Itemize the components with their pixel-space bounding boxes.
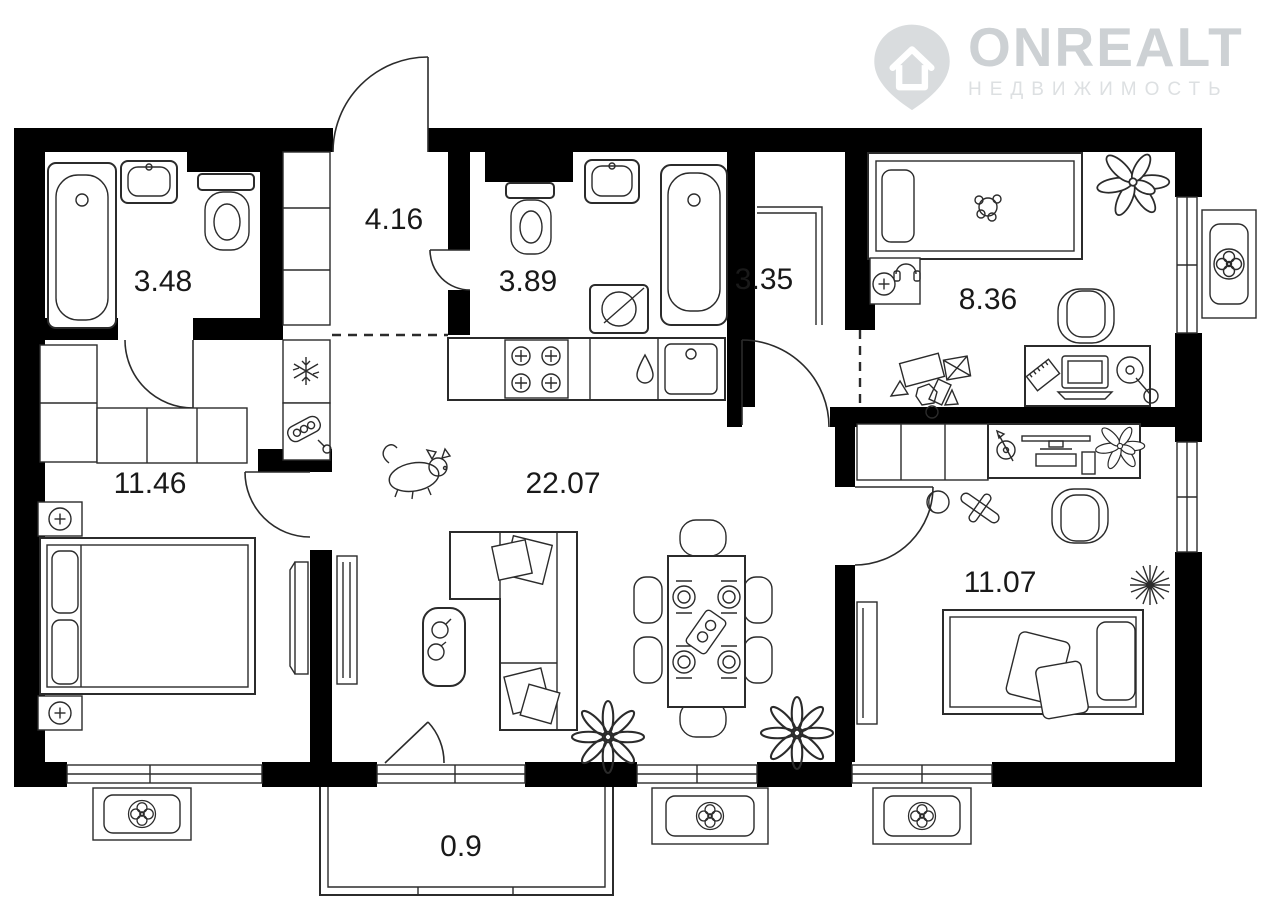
ac-unit-living	[652, 788, 768, 844]
water-heater-icon	[283, 403, 331, 460]
room-label-child: 8.36	[959, 283, 1017, 316]
double-bed-icon	[40, 538, 255, 694]
toys-icon	[927, 491, 1001, 525]
spiky-plant-icon	[1130, 565, 1170, 605]
storage-shelves	[283, 152, 330, 325]
tv-panel-icon	[290, 562, 308, 674]
nightstand-lamp-icon	[38, 696, 82, 730]
room-label-balcony: 0.9	[440, 830, 482, 863]
dining-table-icon	[634, 520, 772, 737]
fridge-snowflake-icon	[283, 340, 330, 403]
ac-unit-master	[93, 788, 191, 840]
stove-icon	[505, 340, 568, 398]
room-bedroom2: 11.07	[857, 424, 1170, 724]
room-label-hallway: 4.16	[365, 203, 423, 236]
room-label-closet: 3.35	[735, 263, 793, 296]
coffee-table-icon	[423, 608, 465, 686]
wardrobe-side-icon	[857, 602, 877, 724]
bedroom2-door-arc	[855, 487, 933, 565]
ac-units-bottom	[93, 788, 971, 844]
room-bathroom2: 3.89	[499, 160, 727, 333]
window-bedroom2	[852, 765, 992, 783]
room-label-bedroom2: 11.07	[964, 566, 1037, 599]
plant-icon	[1096, 152, 1169, 218]
wardrobe-icon	[857, 424, 988, 480]
nightstand-lamp-icon	[870, 258, 920, 304]
window-balcony-door-unit	[377, 765, 525, 783]
entrance-door-arc	[333, 57, 428, 152]
desk-icon	[1025, 346, 1158, 406]
toilet-icon	[198, 174, 254, 250]
sink-icon	[121, 161, 177, 203]
room-label-master: 11.46	[114, 467, 187, 500]
tv-console-icon	[337, 556, 357, 684]
bathtub-icon	[661, 165, 727, 325]
pet-icon	[383, 445, 450, 499]
room-hallway: 4.16	[365, 203, 423, 236]
floorplan-page: ONREALT НЕДВИЖИМОСТЬ	[0, 0, 1269, 910]
desk-icon	[988, 424, 1145, 478]
room-label-living: 22.07	[525, 467, 600, 500]
floorplan-drawing: 3.48	[0, 0, 1269, 910]
sofa-icon	[450, 532, 577, 730]
closet-door-arc	[742, 340, 829, 427]
flower-icon	[761, 697, 833, 769]
wardrobe-icon	[97, 408, 247, 463]
room-master: 11.46	[38, 467, 308, 730]
room-balcony: 0.9	[320, 787, 613, 895]
bathroom1-door-arc	[125, 340, 193, 408]
window-bedroom2-side	[1177, 442, 1197, 552]
kitchen-counter	[448, 338, 725, 400]
room-label-bathroom2: 3.89	[499, 265, 557, 298]
balcony-door-arc	[385, 722, 444, 763]
room-bathroom1: 3.48	[48, 152, 330, 328]
single-bed-icon	[943, 610, 1143, 720]
window-child-room	[1177, 197, 1197, 333]
ac-unit-right	[1202, 210, 1256, 318]
bedroom-master-door-arc	[245, 472, 310, 537]
toilet-icon	[506, 183, 554, 254]
bathroom2-door-arc	[430, 250, 470, 290]
nightstand-lamp-icon	[38, 502, 82, 536]
office-chair-icon	[1052, 489, 1108, 543]
ac-unit-bedroom2	[873, 788, 971, 844]
window-bedroom-master	[67, 765, 262, 783]
kitchen-sink-icon	[665, 344, 717, 394]
office-chair-icon	[1058, 289, 1114, 343]
sink-icon	[585, 160, 639, 203]
room-child: 8.36	[868, 152, 1169, 418]
single-bed-icon	[868, 153, 1082, 259]
room-label-bathroom1: 3.48	[134, 265, 192, 298]
washing-machine-icon	[590, 285, 648, 333]
window-living	[637, 765, 757, 783]
hall-cabinets	[40, 340, 331, 463]
bathtub-icon	[48, 163, 116, 328]
room-living: 22.07	[337, 445, 833, 773]
laptop-icon	[1058, 356, 1112, 399]
